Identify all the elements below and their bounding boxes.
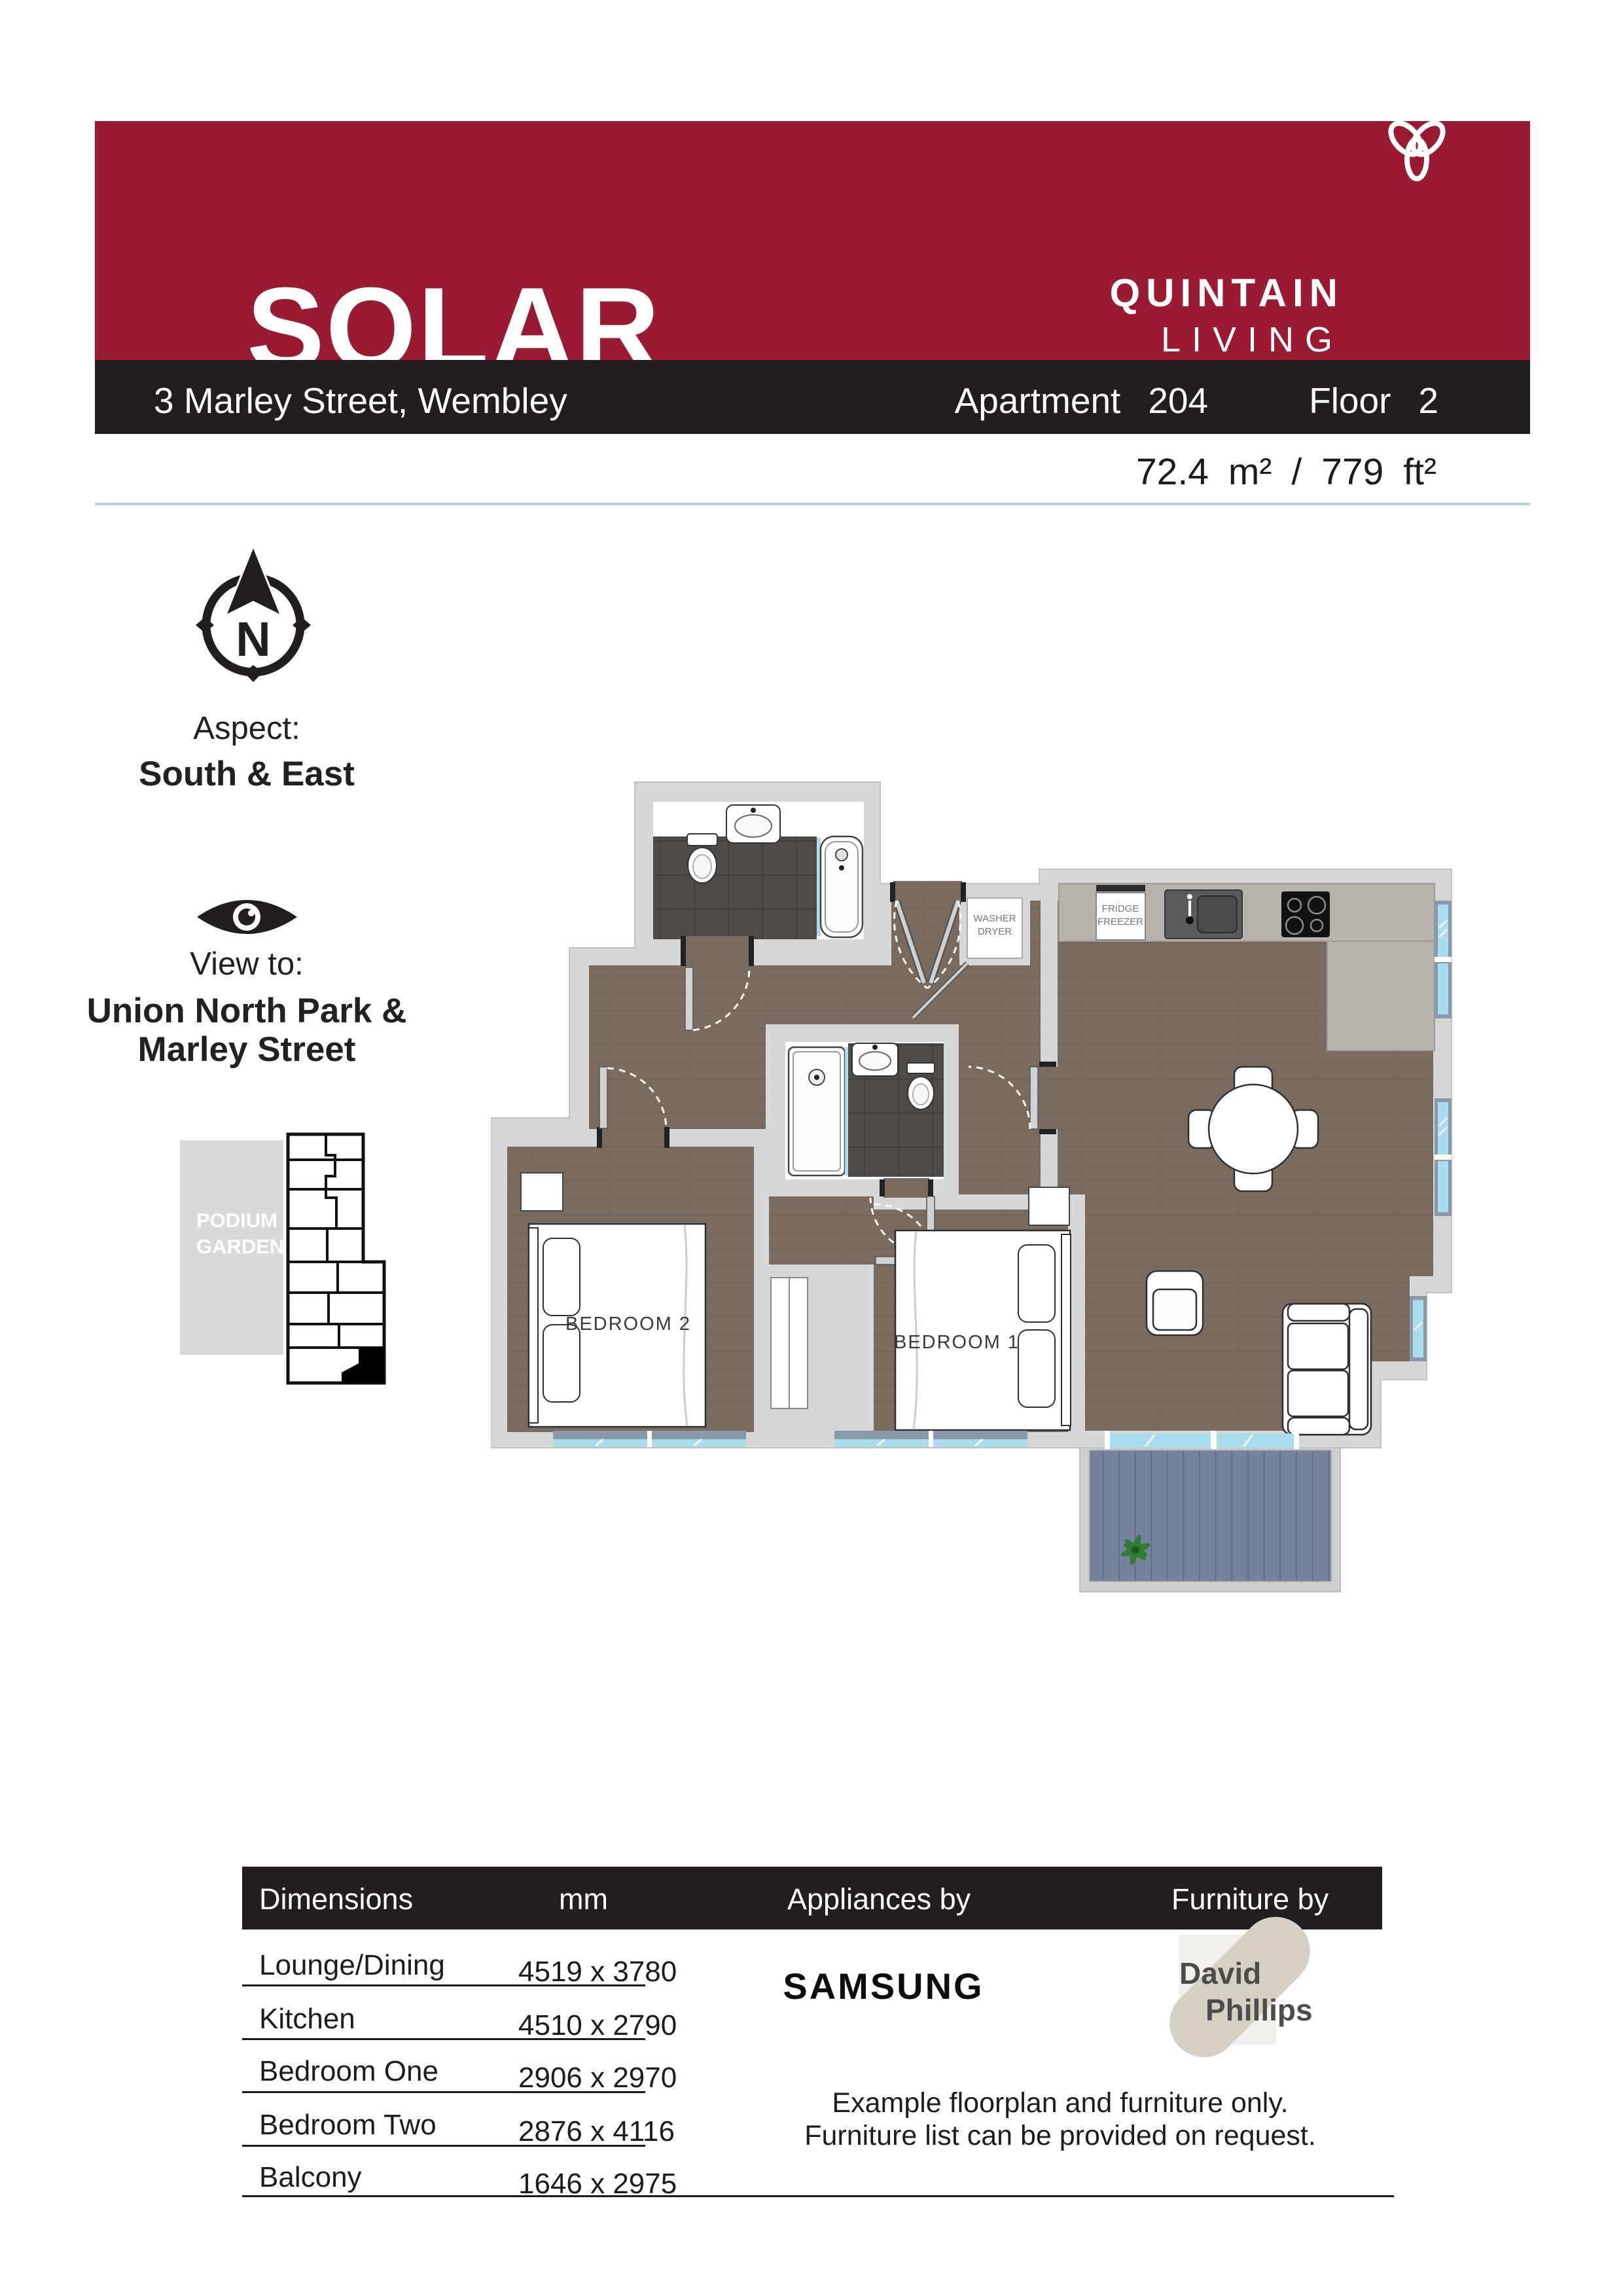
floor-area: 72.4 m² / 779 ft²	[1136, 450, 1436, 493]
balcony	[1080, 1448, 1340, 1592]
armchair	[1147, 1271, 1203, 1335]
table-row-room: Bedroom Two	[259, 2109, 437, 2142]
view-heading: View to:	[116, 946, 378, 982]
floorplan: WASHER DRYER FRIDGE FREEZER	[491, 772, 1472, 1610]
shower	[789, 1047, 848, 1175]
row-divider	[242, 1984, 645, 1986]
apartment-number: 204	[1148, 380, 1208, 422]
washer-dryer-label-2: DRYER	[978, 926, 1012, 937]
apartment-floor-info: Apartment 204 Floor 2	[955, 380, 1438, 422]
bathroom-sink	[726, 805, 780, 843]
area-metric-value: 72.4	[1136, 450, 1209, 493]
building-outline	[288, 1134, 384, 1383]
furniture-brand-line2: Phillips	[1205, 1992, 1313, 2028]
quintain-flower-icon	[1381, 116, 1453, 188]
street-address: 3 Marley Street, Wembley	[154, 380, 567, 422]
disclaimer-line1: Example floorplan and furniture only.	[759, 2087, 1361, 2119]
table-row-room: Lounge/Dining	[259, 1949, 445, 1982]
ensuite-sink	[852, 1043, 898, 1076]
table-row-size: 4510 x 2790	[518, 2009, 677, 2042]
fridge-freezer: FRIDGE FREEZER	[1096, 893, 1145, 940]
view-value-line2: Marley Street	[50, 1030, 443, 1069]
disclaimer-line2: Furniture list can be provided on reques…	[759, 2119, 1361, 2152]
sofa	[1283, 1304, 1371, 1435]
table-header-bar: Dimensions mm Appliances by Furniture by	[242, 1867, 1382, 1929]
table-row-room: Balcony	[259, 2161, 362, 2194]
kitchen-sink	[1165, 890, 1242, 939]
bathroom	[653, 802, 864, 939]
floor-number: 2	[1418, 380, 1438, 422]
apartment-label: Apartment	[955, 380, 1121, 422]
aspect-value: South & East	[83, 754, 410, 794]
hob	[1281, 891, 1330, 937]
table-row-size: 2876 x 4116	[518, 2115, 675, 2148]
floor-label: Floor	[1309, 380, 1391, 422]
divider-rule	[95, 503, 1530, 505]
fridge-freezer-label-1: FRIDGE	[1102, 903, 1139, 914]
table-row-size: 4519 x 3780	[518, 1956, 677, 1988]
table-row-room: Bedroom One	[259, 2055, 438, 2088]
kitchen-tall-unit	[1096, 885, 1145, 891]
brand-logo: QUINTAIN LIVING	[1109, 274, 1344, 357]
brand-name-2: LIVING	[1109, 322, 1344, 357]
row-divider	[242, 2038, 645, 2040]
area-imperial-value: 779	[1321, 450, 1383, 493]
samsung-logo: SAMSUNG	[753, 1965, 1014, 2007]
key-plan: PODIUM GARDEN	[177, 1129, 393, 1391]
compass-north-letter: N	[236, 612, 270, 666]
area-separator: /	[1291, 450, 1302, 493]
bedroom1-label: BEDROOM 1	[894, 1332, 1020, 1353]
table-row-size: 2906 x 2970	[518, 2062, 677, 2094]
bed-bedroom1	[895, 1230, 1071, 1430]
podium-garden-label-2: GARDEN	[196, 1235, 284, 1258]
view-value-line1: Union North Park &	[50, 992, 443, 1030]
spacer	[1236, 380, 1281, 422]
furniture-brand-line1: David	[1179, 1956, 1261, 1991]
balcony-doors	[1105, 1431, 1299, 1449]
toilet	[687, 834, 717, 883]
view-eye-icon	[193, 893, 301, 941]
wardrobe	[771, 1278, 808, 1408]
north-compass-icon: N	[181, 543, 325, 700]
view-value: Union North Park & Marley Street	[50, 992, 443, 1069]
row-divider	[242, 2091, 645, 2093]
address-bar: 3 Marley Street, Wembley Apartment 204 F…	[95, 360, 1530, 434]
bedroom2-label: BEDROOM 2	[565, 1314, 691, 1335]
ensuite-toilet	[907, 1063, 935, 1109]
floorplan-brochure-page: SOLAR 2 Bed Apartment QUINTAIN LIVING 3 …	[0, 0, 1623, 2296]
row-divider	[242, 2145, 645, 2147]
podium-garden-label-1: PODIUM	[196, 1209, 277, 1232]
table-bottom-border	[242, 2195, 1394, 2197]
nightstand-bedroom1	[1029, 1187, 1069, 1225]
area-metric-unit: m²	[1228, 450, 1272, 493]
brand-name: QUINTAIN	[1109, 274, 1344, 313]
header-banner: SOLAR 2 Bed Apartment QUINTAIN LIVING	[95, 121, 1530, 360]
col-dimensions: Dimensions	[259, 1882, 413, 1916]
col-furniture: Furniture by	[1171, 1882, 1329, 1916]
ensuite	[766, 1024, 959, 1196]
bathtub	[821, 836, 863, 937]
fridge-freezer-label-2: FREEZER	[1097, 916, 1143, 927]
col-appliances: Appliances by	[787, 1882, 971, 1916]
area-imperial-unit: ft²	[1403, 450, 1436, 493]
washer-dryer-label-1: WASHER	[973, 913, 1016, 924]
aspect-heading: Aspect:	[116, 710, 378, 747]
nightstand-bedroom2	[521, 1173, 563, 1211]
table-row-room: Kitchen	[259, 2003, 355, 2036]
col-mm: mm	[559, 1882, 608, 1916]
disclaimer-note: Example floorplan and furniture only. Fu…	[759, 2087, 1361, 2152]
